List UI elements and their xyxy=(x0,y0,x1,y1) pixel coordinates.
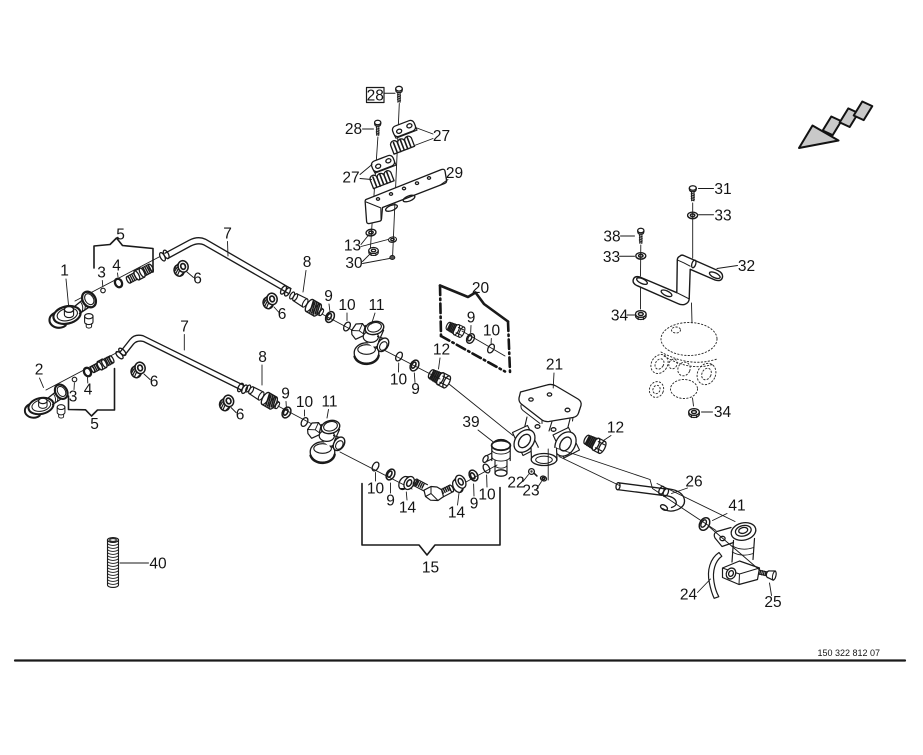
svg-text:8: 8 xyxy=(303,254,312,271)
svg-text:33: 33 xyxy=(603,249,620,266)
svg-text:9: 9 xyxy=(470,496,479,513)
svg-text:7: 7 xyxy=(223,226,232,243)
svg-text:4: 4 xyxy=(84,382,93,399)
svg-text:10: 10 xyxy=(338,297,356,314)
svg-text:26: 26 xyxy=(685,474,702,491)
svg-text:6: 6 xyxy=(193,271,202,288)
svg-text:11: 11 xyxy=(321,394,337,411)
svg-text:25: 25 xyxy=(764,594,781,611)
svg-text:8: 8 xyxy=(258,349,267,366)
svg-text:39: 39 xyxy=(462,414,479,431)
svg-text:13: 13 xyxy=(344,238,361,255)
svg-text:10: 10 xyxy=(478,487,496,504)
svg-text:23: 23 xyxy=(522,483,539,500)
svg-text:30: 30 xyxy=(345,255,363,272)
svg-text:28: 28 xyxy=(345,121,362,138)
svg-text:10: 10 xyxy=(296,394,314,411)
svg-text:14: 14 xyxy=(448,505,466,522)
svg-text:6: 6 xyxy=(236,407,245,424)
svg-text:38: 38 xyxy=(603,229,620,246)
svg-text:9: 9 xyxy=(281,386,290,403)
svg-text:11: 11 xyxy=(368,297,384,314)
svg-text:34: 34 xyxy=(714,404,732,421)
svg-text:27: 27 xyxy=(433,128,450,145)
svg-text:5: 5 xyxy=(90,416,99,433)
svg-text:40: 40 xyxy=(149,556,167,573)
svg-text:10: 10 xyxy=(367,481,385,498)
svg-text:32: 32 xyxy=(738,258,755,275)
svg-text:3: 3 xyxy=(97,265,106,282)
svg-text:9: 9 xyxy=(386,493,395,510)
svg-text:34: 34 xyxy=(611,308,629,325)
svg-text:12: 12 xyxy=(433,342,450,359)
svg-text:9: 9 xyxy=(467,310,476,327)
svg-text:150 322 812 07: 150 322 812 07 xyxy=(817,648,880,658)
svg-text:6: 6 xyxy=(150,374,159,391)
svg-text:3: 3 xyxy=(69,389,78,406)
svg-text:9: 9 xyxy=(411,381,420,398)
svg-text:28: 28 xyxy=(367,88,384,105)
svg-text:4: 4 xyxy=(112,258,121,275)
svg-text:29: 29 xyxy=(446,165,463,182)
svg-text:21: 21 xyxy=(546,357,563,374)
svg-text:12: 12 xyxy=(607,420,624,437)
svg-text:14: 14 xyxy=(399,500,417,517)
svg-text:10: 10 xyxy=(390,372,408,389)
svg-text:15: 15 xyxy=(422,560,439,577)
svg-text:27: 27 xyxy=(342,170,359,187)
svg-text:10: 10 xyxy=(483,323,501,340)
svg-text:20: 20 xyxy=(472,280,490,297)
svg-text:1: 1 xyxy=(60,263,69,280)
svg-text:7: 7 xyxy=(180,319,189,336)
svg-text:41: 41 xyxy=(728,498,745,515)
svg-text:9: 9 xyxy=(324,288,333,305)
svg-text:31: 31 xyxy=(714,181,731,198)
svg-text:6: 6 xyxy=(278,306,287,323)
svg-text:5: 5 xyxy=(116,227,125,244)
svg-text:2: 2 xyxy=(35,362,44,379)
svg-text:24: 24 xyxy=(680,587,698,604)
svg-text:33: 33 xyxy=(714,208,731,225)
